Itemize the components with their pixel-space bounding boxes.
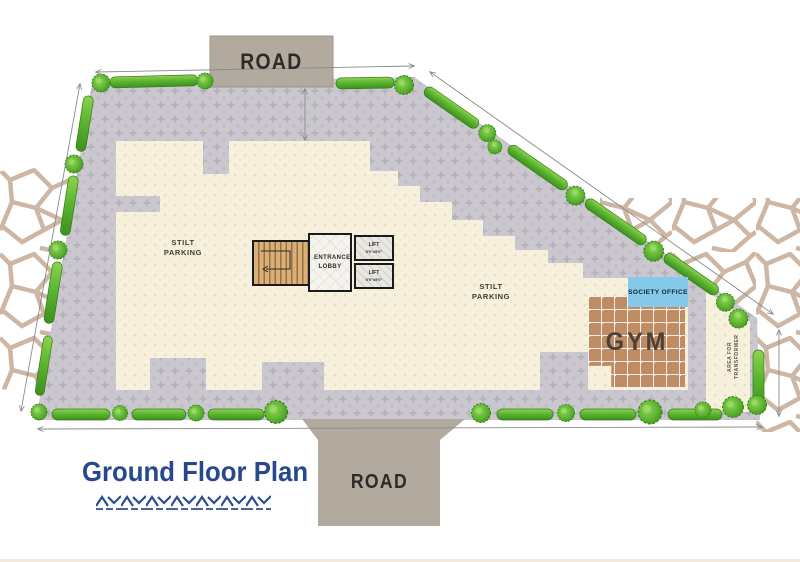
society-office: SOCIETY OFFICE — [628, 277, 688, 307]
transformer-area-label-box: AREA FOR TRANSFORMER — [716, 325, 752, 389]
stilt-parking-right-label: STILT PARKING — [460, 282, 522, 302]
tree-symbol — [31, 404, 47, 420]
staircase — [252, 240, 310, 286]
entrance-lobby: ENTRANCE LOBBY — [308, 233, 352, 292]
hedge-segment — [497, 409, 553, 420]
lift-bottom-size: 5'0"x5'0" — [366, 277, 383, 282]
tree-symbol — [112, 405, 127, 420]
road-bottom-label-box: ROAD — [318, 462, 440, 502]
tree-symbol — [65, 155, 83, 173]
hedge-segment — [132, 409, 186, 420]
entrance-lobby-label: ENTRANCE LOBBY — [314, 254, 346, 272]
tree-symbol — [188, 405, 204, 421]
lift-bottom: LIFT 5'0"x5'0" — [354, 263, 394, 289]
stair-direction-arrow — [254, 242, 308, 284]
hedge-segment — [336, 77, 394, 89]
lift-top: LIFT 5'0"x5'0" — [354, 235, 394, 261]
page-title: Ground Floor Plan — [82, 456, 308, 488]
stilt-parking-left-label: STILT PARKING — [152, 238, 214, 258]
hedge-segment — [110, 75, 198, 88]
title-decorative-border — [96, 494, 271, 510]
tree-symbol — [395, 76, 414, 95]
transformer-area-label: AREA FOR TRANSFORMER — [727, 335, 741, 379]
tree-symbol — [265, 401, 288, 424]
tree-symbol — [49, 241, 67, 259]
tree-symbol — [557, 404, 574, 421]
tree-symbol — [92, 74, 110, 92]
gym-label: GYM — [605, 328, 668, 357]
tree-symbol — [748, 396, 767, 415]
hedge-segment — [580, 409, 636, 420]
tree-symbol — [638, 400, 662, 424]
road-bottom-label: ROAD — [350, 471, 407, 494]
road-top-label-box: ROAD — [210, 36, 333, 87]
hedge-segment — [208, 409, 264, 420]
floor-plan-canvas: ROAD ROAD STILT PARKING STILT PARKING EN… — [0, 0, 800, 562]
tree-symbol — [695, 402, 711, 418]
hedge-segment — [52, 409, 110, 420]
tree-symbol — [472, 404, 491, 423]
road-top-label: ROAD — [240, 49, 302, 75]
lift-top-size: 5'0"x5'0" — [366, 249, 383, 254]
tree-symbol — [723, 397, 744, 418]
society-office-label: SOCIETY OFFICE — [628, 289, 688, 296]
